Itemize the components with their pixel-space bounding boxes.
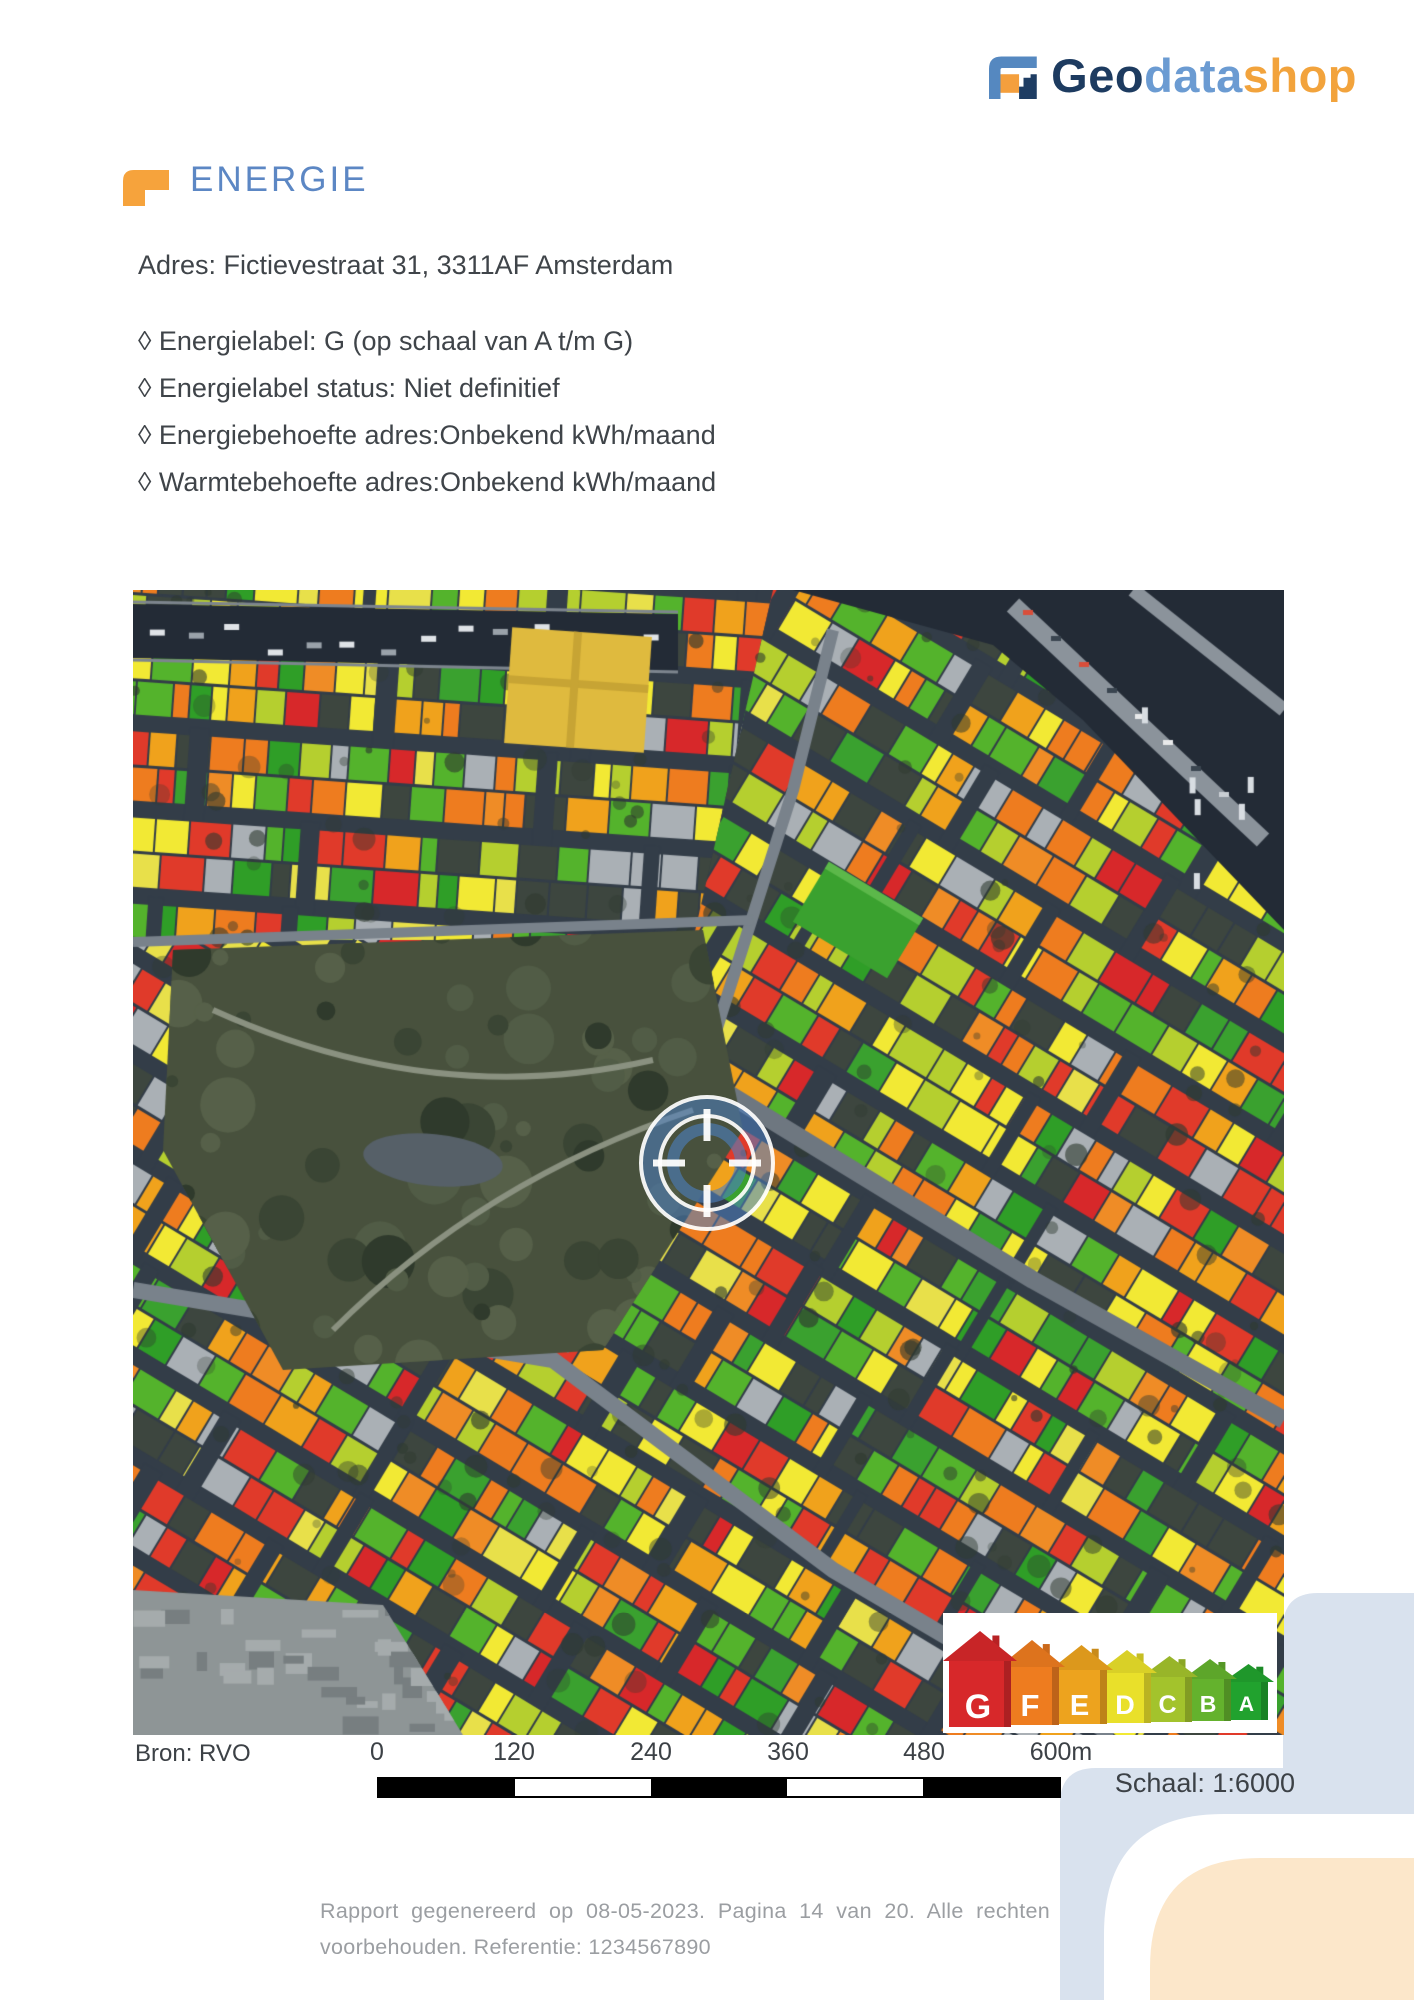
scale-tick-0: 0	[332, 1738, 422, 1767]
scale-bar	[377, 1777, 1061, 1798]
legend-house-G: G	[943, 1631, 1017, 1727]
section-flag-icon	[123, 170, 169, 206]
geodatashop-logo-text: Geodatashop	[1051, 52, 1357, 99]
scale-tick-480: 480	[879, 1738, 969, 1767]
legend-house-E: E	[1050, 1645, 1113, 1724]
scale-bar-segment	[379, 1779, 515, 1796]
scale-tick-600: 600m	[1016, 1738, 1106, 1767]
location-marker-icon	[637, 1093, 777, 1233]
scale-tick-120: 120	[469, 1738, 559, 1767]
fact-energiebehoefte: ◊ Energiebehoefte adres:Onbekend kWh/maa…	[138, 412, 716, 459]
logo-part-shop: shop	[1243, 49, 1357, 102]
svg-text:G: G	[965, 1688, 991, 1726]
fact-energielabel: ◊ Energielabel: G (op schaal van A t/m G…	[138, 318, 716, 365]
svg-text:B: B	[1200, 1691, 1217, 1717]
svg-text:D: D	[1115, 1690, 1135, 1720]
report-page: Geodatashop ENERGIE Adres: Fictievestraa…	[0, 0, 1414, 2000]
deco-peach-corner	[1150, 1858, 1414, 2000]
energy-label-houses: ABCDEFG	[943, 1613, 1277, 1733]
geodatashop-logo-icon	[985, 53, 1039, 99]
energy-facts-list: ◊ Energielabel: G (op schaal van A t/m G…	[138, 318, 716, 506]
energy-label-legend: ABCDEFG	[943, 1613, 1277, 1733]
page-footer: Rapport gegenereerd op 08-05-2023. Pagin…	[320, 1899, 1050, 1960]
svg-text:C: C	[1158, 1691, 1176, 1719]
deco-blue-corner	[1060, 1768, 1414, 2000]
address-line: Adres: Fictievestraat 31, 3311AF Amsterd…	[138, 250, 673, 281]
scale-bar-segment	[787, 1779, 923, 1796]
fact-warmtebehoefte: ◊ Warmtebehoefte adres:Onbekend kWh/maan…	[138, 459, 716, 506]
deco-white-band	[1104, 1814, 1414, 2000]
deco-blue-strip	[1283, 1593, 1414, 2000]
scale-tick-240: 240	[606, 1738, 696, 1767]
scale-bar-segment	[651, 1779, 787, 1796]
page-title: ENERGIE	[190, 160, 369, 200]
svg-text:A: A	[1239, 1693, 1254, 1716]
energy-label-map: ABCDEFG	[133, 590, 1284, 1735]
map-scale-label: Schaal: 1:6000	[1020, 1768, 1295, 1799]
logo-part-geo: Geo	[1051, 49, 1144, 102]
fact-energielabel-status: ◊ Energielabel status: Niet definitief	[138, 365, 716, 412]
geodatashop-logo: Geodatashop	[985, 52, 1357, 99]
map-source-label: Bron: RVO	[135, 1740, 251, 1768]
footer-line-2: voorbehouden. Referentie: 1234567890	[320, 1935, 1050, 1960]
footer-line-1: Rapport gegenereerd op 08-05-2023. Pagin…	[320, 1899, 1050, 1924]
scale-tick-360: 360	[743, 1738, 833, 1767]
logo-part-data: data	[1144, 49, 1243, 102]
scale-bar-segment	[515, 1779, 651, 1796]
svg-text:F: F	[1021, 1688, 1040, 1723]
svg-text:E: E	[1070, 1690, 1089, 1722]
